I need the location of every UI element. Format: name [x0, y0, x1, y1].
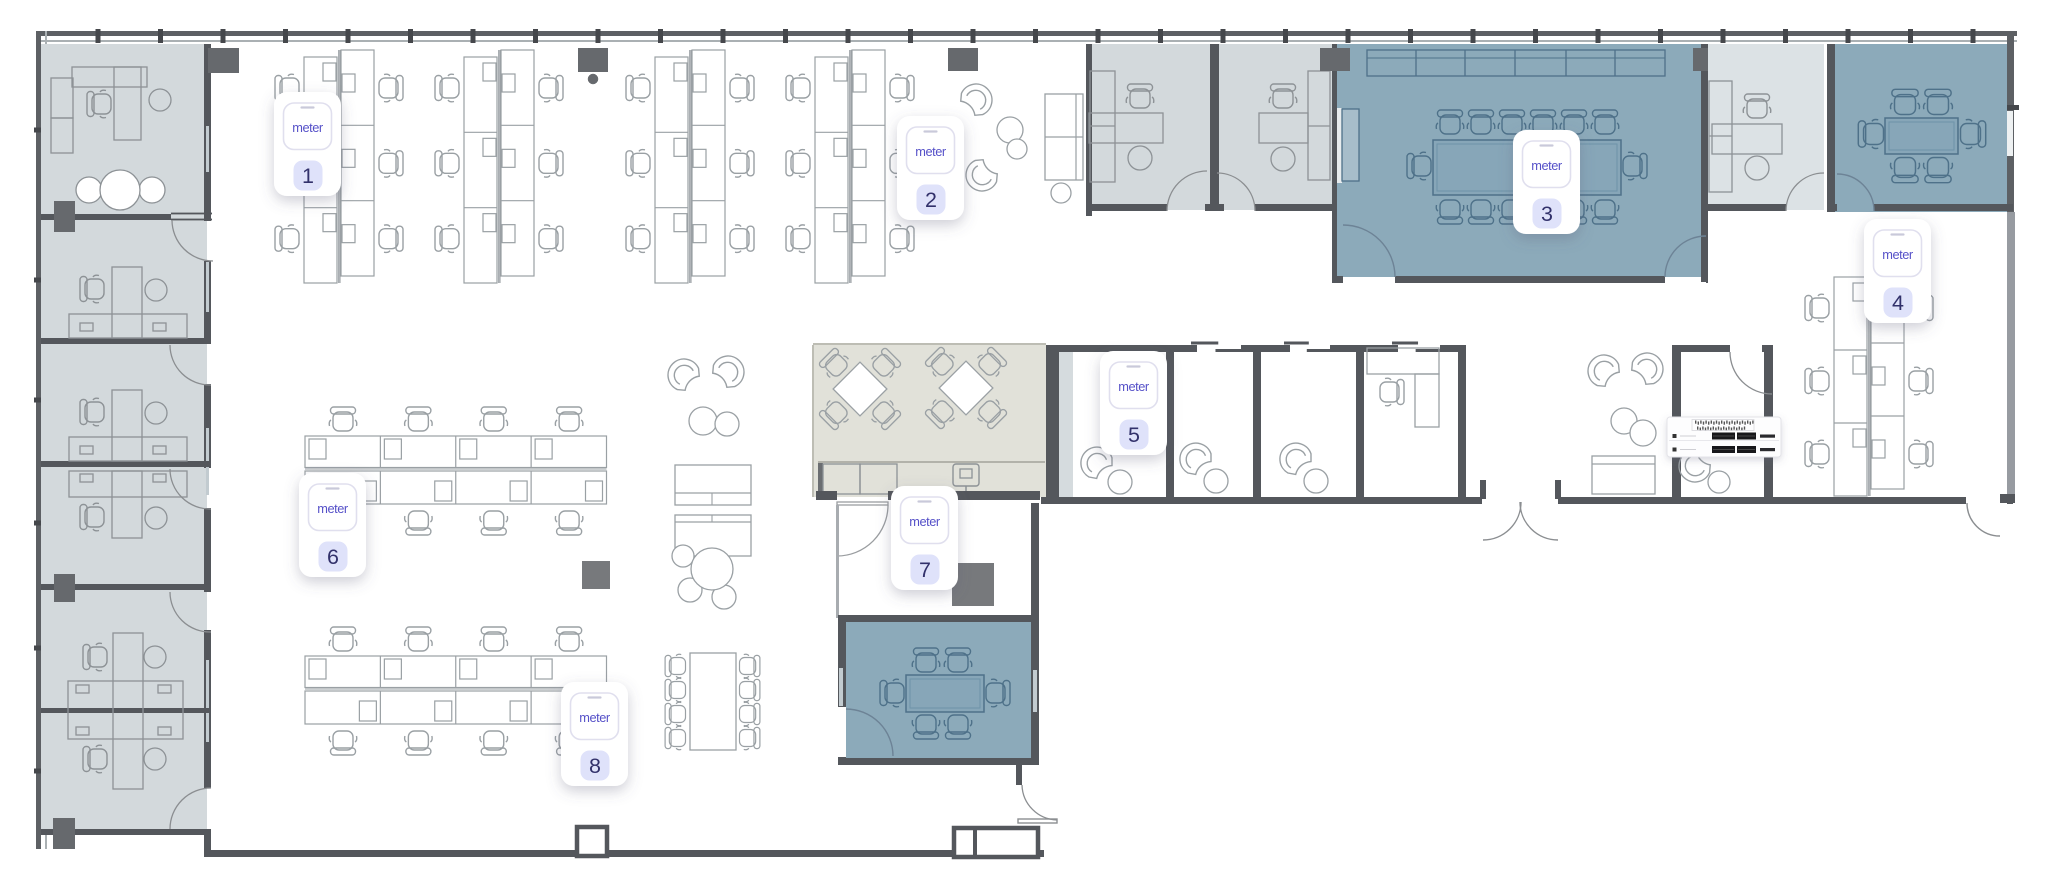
svg-text:4: 4	[1892, 291, 1904, 315]
svg-text:2: 2	[925, 188, 937, 212]
svg-text:8: 8	[589, 754, 601, 778]
svg-text:meter: meter	[579, 710, 611, 725]
svg-text:meter: meter	[1118, 379, 1150, 394]
svg-text:1: 1	[302, 164, 314, 188]
svg-text:meter: meter	[317, 501, 349, 516]
svg-text:meter: meter	[1882, 247, 1914, 262]
svg-text:7: 7	[919, 558, 931, 582]
svg-text:3: 3	[1541, 202, 1553, 226]
svg-text:6: 6	[327, 545, 339, 569]
svg-text:meter: meter	[915, 144, 947, 159]
svg-text:5: 5	[1128, 423, 1140, 447]
svg-text:meter: meter	[909, 514, 941, 529]
svg-text:meter: meter	[1531, 158, 1563, 173]
svg-text:meter: meter	[292, 120, 324, 135]
